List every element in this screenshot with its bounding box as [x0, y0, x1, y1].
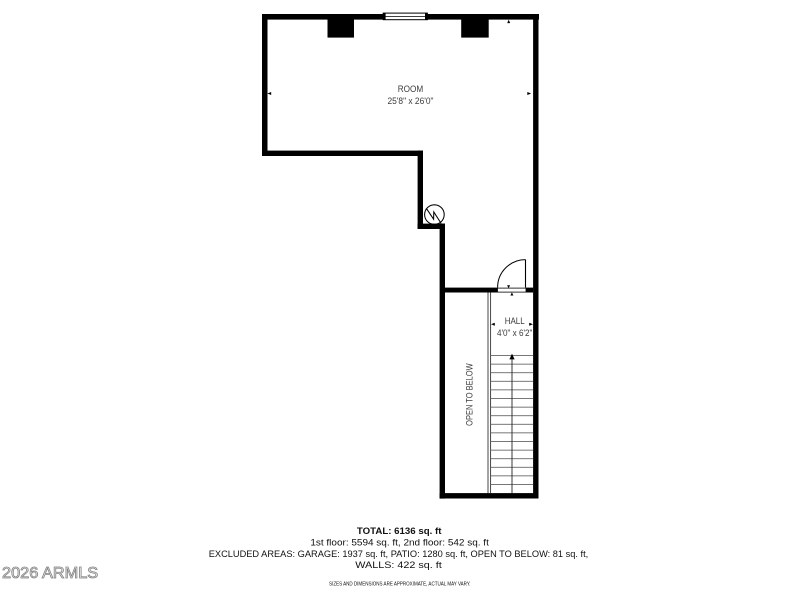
svg-text:1st floor: 5594 sq. ft, 2nd fl: 1st floor: 5594 sq. ft, 2nd floor: 542 s… — [310, 537, 489, 548]
svg-text:ROOM: ROOM — [398, 84, 424, 95]
svg-text:OPEN TO BELOW: OPEN TO BELOW — [465, 363, 476, 426]
svg-text:2026 ARMLS: 2026 ARMLS — [2, 565, 98, 582]
svg-text:4'0" x 6'2": 4'0" x 6'2" — [497, 328, 533, 339]
svg-text:EXCLUDED AREAS: GARAGE: 1937 s: EXCLUDED AREAS: GARAGE: 1937 sq. ft, PAT… — [209, 549, 589, 560]
svg-text:25'8" x 26'0": 25'8" x 26'0" — [388, 96, 434, 107]
svg-text:HALL: HALL — [505, 316, 526, 327]
svg-text:WALLS: 422 sq. ft: WALLS: 422 sq. ft — [355, 560, 442, 571]
svg-text:TOTAL: 6136 sq. ft: TOTAL: 6136 sq. ft — [357, 526, 442, 537]
svg-text:SIZES AND DIMENSIONS ARE APPRO: SIZES AND DIMENSIONS ARE APPROXIMATE, AC… — [329, 582, 471, 588]
